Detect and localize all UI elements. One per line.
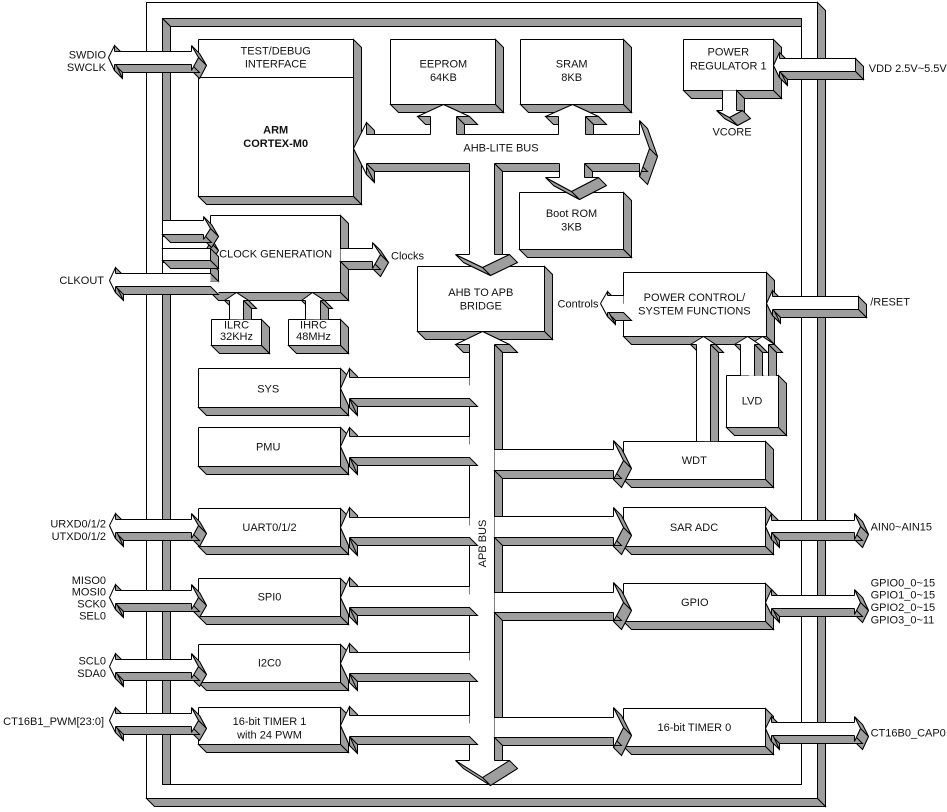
svg-text:EEPROM: EEPROM	[420, 59, 468, 71]
svg-text:POWER CONTROL/: POWER CONTROL/	[644, 292, 746, 304]
svg-text:SYSTEM FUNCTIONS: SYSTEM FUNCTIONS	[638, 306, 750, 318]
svg-text:SDA0: SDA0	[77, 668, 106, 680]
svg-text:16-bit TIMER 1: 16-bit TIMER 1	[233, 716, 307, 728]
svg-text:UART0/1/2: UART0/1/2	[242, 522, 296, 534]
svg-text:GPIO3_0~11: GPIO3_0~11	[871, 614, 935, 626]
svg-text:Boot ROM: Boot ROM	[546, 208, 597, 220]
svg-text:CT16B0_CAP0: CT16B0_CAP0	[871, 728, 946, 740]
svg-text:CLOCK GENERATION: CLOCK GENERATION	[219, 249, 332, 261]
svg-text:SWCLK: SWCLK	[67, 62, 107, 74]
svg-text:SCL0: SCL0	[78, 656, 106, 668]
svg-text:URXD0/1/2: URXD0/1/2	[50, 519, 106, 531]
svg-text:SWDIO: SWDIO	[69, 50, 107, 62]
svg-text:APB BUS: APB BUS	[477, 520, 489, 568]
svg-text:BRIDGE: BRIDGE	[460, 301, 502, 313]
svg-text:VDD 2.5V~5.5V: VDD 2.5V~5.5V	[869, 63, 947, 75]
svg-text:/RESET: /RESET	[870, 297, 910, 309]
svg-text:AHB-LITE BUS: AHB-LITE BUS	[463, 143, 538, 155]
svg-text:3KB: 3KB	[561, 222, 582, 234]
svg-text:VCORE: VCORE	[712, 127, 751, 139]
svg-text:CLKOUT: CLKOUT	[59, 275, 104, 287]
svg-text:8KB: 8KB	[561, 72, 582, 84]
svg-text:SRAM: SRAM	[556, 59, 588, 71]
svg-text:SAR ADC: SAR ADC	[670, 522, 718, 534]
svg-text:MOSI0: MOSI0	[72, 587, 106, 599]
svg-text:SYS: SYS	[257, 384, 279, 396]
svg-text:Clocks: Clocks	[391, 251, 425, 263]
svg-text:UTXD0/1/2: UTXD0/1/2	[52, 531, 106, 543]
svg-text:ILRC: ILRC	[224, 320, 249, 332]
svg-text:AIN0~AIN15: AIN0~AIN15	[871, 522, 932, 534]
svg-text:GPIO1_0~15: GPIO1_0~15	[871, 590, 936, 602]
svg-text:GPIO0_0~15: GPIO0_0~15	[871, 578, 936, 590]
svg-text:TEST/DEBUG: TEST/DEBUG	[241, 46, 311, 58]
svg-text:I2C0: I2C0	[258, 658, 281, 670]
svg-text:AHB TO APB: AHB TO APB	[448, 287, 513, 299]
svg-text:64KB: 64KB	[430, 72, 457, 84]
svg-text:REGULATOR 1: REGULATOR 1	[690, 61, 767, 73]
svg-text:CORTEX-M0: CORTEX-M0	[243, 138, 308, 150]
svg-text:SPI0: SPI0	[258, 592, 282, 604]
svg-text:INTERFACE: INTERFACE	[245, 59, 307, 71]
svg-text:Controls: Controls	[558, 299, 599, 311]
svg-text:GPIO2_0~15: GPIO2_0~15	[871, 602, 936, 614]
svg-text:POWER: POWER	[708, 47, 750, 59]
svg-text:16-bit TIMER 0: 16-bit TIMER 0	[658, 722, 732, 734]
svg-text:32KHz: 32KHz	[220, 331, 253, 343]
svg-text:WDT: WDT	[682, 455, 707, 467]
svg-text:SEL0: SEL0	[79, 611, 106, 623]
svg-text:with 24 PWM: with 24 PWM	[236, 729, 302, 741]
svg-text:48MHz: 48MHz	[296, 331, 331, 343]
svg-text:PMU: PMU	[256, 442, 281, 454]
svg-text:MISO0: MISO0	[72, 575, 106, 587]
svg-text:SCK0: SCK0	[77, 599, 106, 611]
svg-text:CT16B1_PWM[23:0]: CT16B1_PWM[23:0]	[3, 716, 104, 728]
svg-text:ARM: ARM	[263, 125, 288, 137]
svg-text:IHRC: IHRC	[300, 320, 327, 332]
svg-text:GPIO: GPIO	[681, 597, 709, 609]
svg-text:LVD: LVD	[742, 396, 763, 408]
